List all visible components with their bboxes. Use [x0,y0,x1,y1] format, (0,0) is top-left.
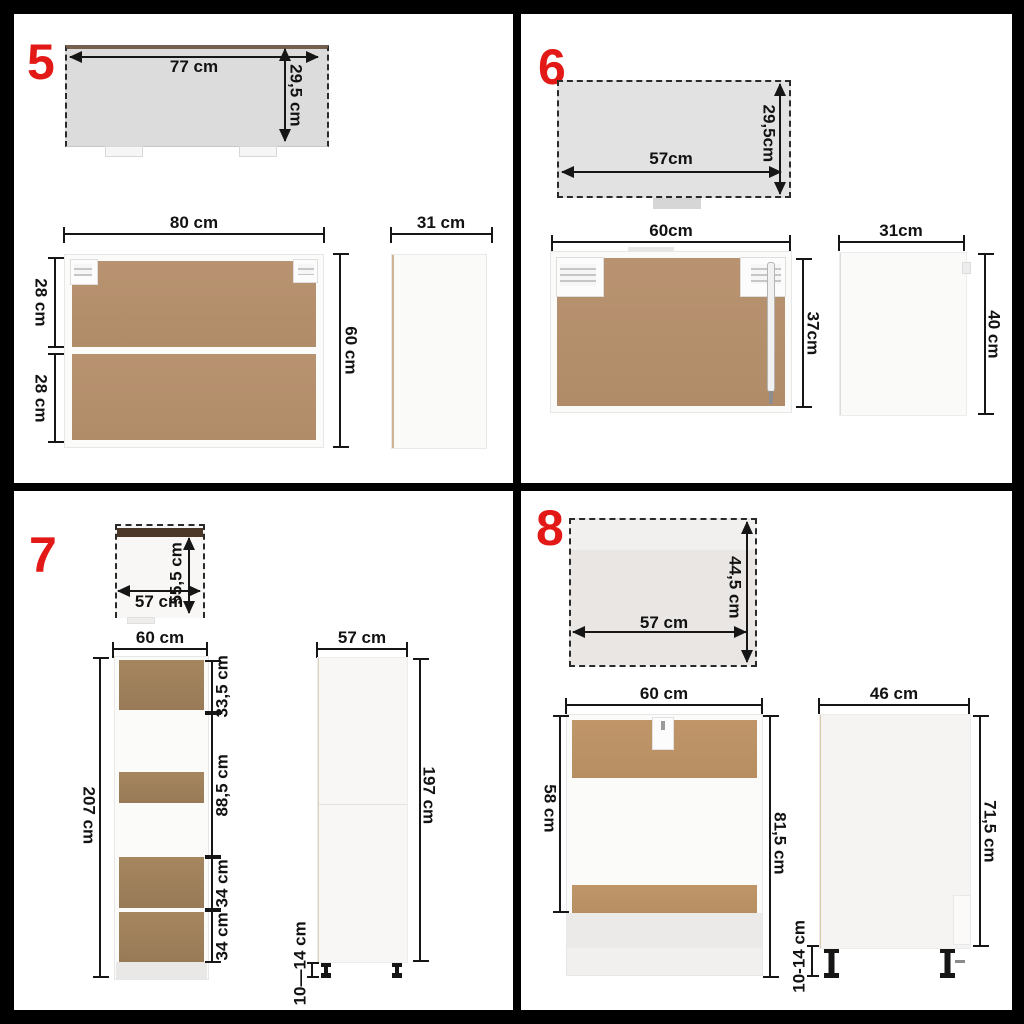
panel-7-legs-dim [311,962,313,978]
panel-7-legs-label: 10—14 cm [292,903,311,1023]
panel-7-front-height-label: 207 cm [79,755,98,875]
panel-5-top-view-foot [240,147,276,156]
panel-5-top-depth-label: 29,5 cm [286,35,305,155]
panel-8-side-width-label: 46 cm [834,685,954,704]
panel-6-side-width-label: 31cm [841,222,961,241]
panel-6-top-width-dim [562,171,781,173]
back-panel [72,354,316,440]
frame-bottom [0,1010,1024,1024]
hinge-hardware [298,264,314,275]
panel-6-side-width-dim [838,241,965,243]
panel-5-side-view [392,255,486,448]
frame-top [0,0,1024,14]
adjustable-leg [321,963,331,978]
panel-6-top-view-tab [653,198,701,209]
frame-left [0,0,14,1024]
panel-6-side-height-label: 40 cm [984,274,1003,394]
panel-7-side-width-label: 57 cm [302,629,422,648]
panel-7-front-view [115,657,208,979]
panel-7-front-width-label: 60 cm [100,629,220,648]
panel-6-top-depth-dim [779,84,781,194]
worktop-edge [117,528,203,537]
shelf-panel [119,772,204,803]
panel-5-side-width-dim [390,233,493,235]
door-seam [319,804,407,805]
panel-6-front-view [551,252,791,412]
panel-7-top-depth-label: 55,5 cm [168,513,187,633]
drawer-tab [954,896,970,944]
panel-6-front-height-label: 37cm [803,273,822,393]
panel-5-section-label: 28 cm [31,338,50,458]
hinge-hardware [560,264,596,286]
panel-7-front-height-dim [99,657,101,978]
panel-8-legs-label: 10-14 cm [791,896,810,1016]
panel-8-front-width-label: 60 cm [604,685,724,704]
panel-8-front-height-label: 81,5 cm [770,783,789,903]
panel-5-top-view-foot [106,147,142,156]
hinge-hardware [751,264,781,284]
back-panel [72,261,316,347]
adjustable-leg [940,949,955,978]
panel-7-side-view [318,658,407,962]
panel-6-top-view [557,80,791,198]
panel-7-number: 7 [29,530,56,580]
grid-divider-vertical [513,0,521,1024]
panel-6-side-view [840,253,966,415]
panel-5-front-height-label: 60 cm [341,290,360,410]
panel-8-side-width-dim [818,704,970,706]
door-panel [119,912,204,962]
plinth [567,913,762,948]
panel-5-section-dim [54,353,56,443]
hinge-hardware [74,264,92,276]
bottom-panel [572,885,757,913]
wall-bracket [963,263,970,273]
door-panel [119,857,204,908]
panel-8-top-depth-label: 44,5 cm [725,527,744,647]
panel-8-front-view [567,715,762,975]
grid-divider-horizontal [0,483,1024,491]
adjustable-leg [392,963,402,978]
panel-7-top-width-label: 57 cm [99,593,219,612]
frame-right [1012,0,1024,1024]
panel-6-top-depth-label: 29,5cm [759,73,778,193]
panel-6-top-width-label: 57cm [611,150,731,169]
panel-5-number: 5 [27,37,54,87]
plinth [116,962,207,979]
panel-7-top-view-foot [128,618,154,623]
leg-crank [955,960,965,963]
panel-5-front-width-label: 80 cm [134,214,254,233]
panel-5-side-width-label: 31 cm [381,214,501,233]
panel-7-side-height-label: 197 cm [419,735,438,855]
panel-7-side-width-dim [316,648,408,650]
panel-8-carcass-height-label: 58 cm [540,748,559,868]
mounting-pin [661,721,665,730]
panel-8-top-depth-dim [746,522,748,662]
panel-7-section-label: 34 cm [214,876,233,996]
panel-8-number: 8 [536,503,563,553]
panel-5-front-width-dim [63,233,325,235]
gas-strut [767,262,775,392]
panel-7-front-width-dim [112,648,208,650]
panel-5-section-dim [54,257,56,348]
plinth [567,948,762,975]
panel-8-side-height-label: 71,5 cm [980,771,999,891]
panel-8-front-width-dim [565,704,763,706]
panel-6-front-width-label: 60cm [611,222,731,241]
panel-8-side-view [820,715,970,948]
panel-8-legs-dim [811,945,813,977]
door-panel [119,660,204,710]
adjustable-leg [824,949,839,978]
cabinet-dimension-sheet: 5 77 cm 29,5 cm 80 cm 28 cm 28 cm 60 cm … [0,0,1024,1024]
panel-5-top-width-label: 77 cm [134,58,254,77]
panel-5-front-view [65,255,323,447]
panel-6-front-width-dim [551,241,791,243]
panel-8-top-width-label: 57 cm [604,614,724,633]
